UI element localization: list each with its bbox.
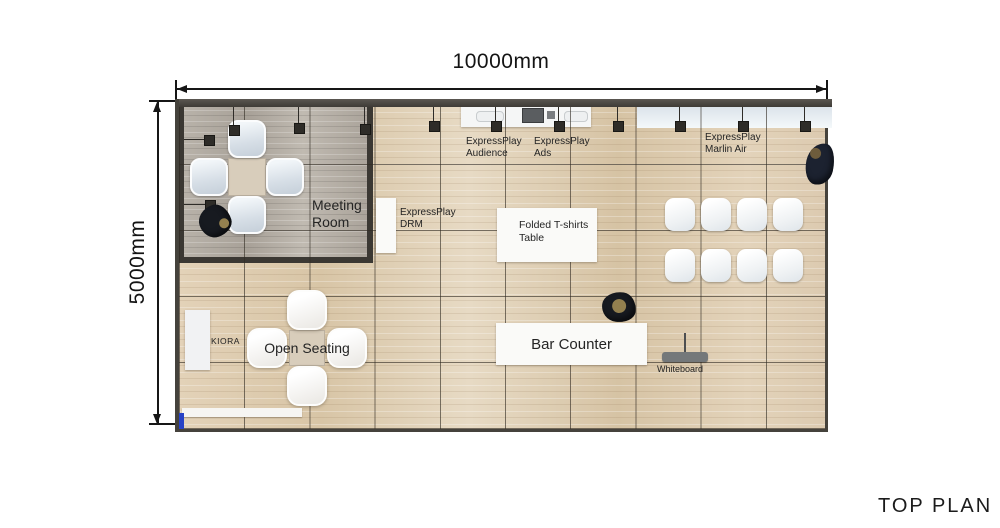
light-stem <box>679 107 680 122</box>
extension-tick <box>149 100 176 102</box>
open-seating-label: Open Seating <box>247 340 367 357</box>
audience-chair <box>773 249 803 282</box>
open-seating-sofa <box>287 366 327 406</box>
horizontal-dimension-line <box>176 88 826 90</box>
light-stem <box>184 204 205 205</box>
expressplay-ads-label: ExpressPlay Ads <box>534 136 590 160</box>
expressplay-marlin-air-label: ExpressPlay Marlin Air <box>705 132 761 156</box>
floor-plan: Bar Counter <box>175 99 828 432</box>
person <box>600 290 638 324</box>
vertical-dimension-line <box>157 102 159 423</box>
person-body <box>802 141 838 188</box>
kiora-kiosk <box>185 310 210 370</box>
audience-chair <box>665 198 695 231</box>
whiteboard-label: Whiteboard <box>657 364 703 375</box>
blue-floor-marker <box>179 413 184 429</box>
audience-chair <box>665 249 695 282</box>
page-title: TOP PLAN <box>878 495 992 518</box>
whiteboard <box>662 352 708 362</box>
meeting-room-label: Meeting Room <box>312 197 362 231</box>
light-stem <box>233 107 234 125</box>
expressplay-audience-label: ExpressPlay Audience <box>466 136 522 160</box>
light-stem <box>495 107 496 122</box>
audience-chair <box>737 198 767 231</box>
bar-counter-label: Bar Counter <box>531 336 612 353</box>
demo-box <box>547 111 555 119</box>
ceiling-light-icon <box>675 121 686 132</box>
drm-stand <box>376 198 396 253</box>
vertical-dimension-label: 5000mm <box>126 220 150 305</box>
meeting-chair <box>266 158 304 196</box>
extension-tick <box>175 80 177 100</box>
ceiling-light-icon <box>738 121 749 132</box>
extension-tick <box>826 80 828 100</box>
open-seating-sofa <box>287 290 327 330</box>
ceiling-light-icon <box>800 121 811 132</box>
dim-arrow-right-icon <box>816 85 826 93</box>
extension-tick <box>149 423 176 425</box>
light-stem <box>364 107 365 124</box>
audience-chair <box>701 249 731 282</box>
bench <box>182 408 302 417</box>
whiteboard-stand <box>684 333 686 352</box>
top-plan-page: 10000mm 5000mm TOP PLAN <box>0 0 1000 528</box>
light-stem <box>298 107 299 123</box>
dim-arrow-up-icon <box>153 102 161 112</box>
ceiling-light-icon <box>294 123 305 134</box>
top-wall <box>179 99 832 107</box>
ceiling-light-icon <box>204 135 215 146</box>
ceiling-light-icon <box>554 121 565 132</box>
expressplay-drm-label: ExpressPlay DRM <box>400 207 456 231</box>
demo-console <box>522 108 544 123</box>
meeting-chair <box>190 158 228 196</box>
bar-counter: Bar Counter <box>496 323 647 365</box>
audience-chair <box>701 198 731 231</box>
light-stem <box>433 107 434 122</box>
tshirt-table-label: Folded T-shirts Table <box>519 219 588 245</box>
ceiling-light-icon <box>429 121 440 132</box>
horizontal-dimension-label: 10000mm <box>175 50 827 74</box>
light-stem <box>558 107 559 122</box>
dim-arrow-left-icon <box>177 85 187 93</box>
audience-chair <box>737 249 767 282</box>
ceiling-light-icon <box>360 124 371 135</box>
ceiling-light-icon <box>491 121 502 132</box>
demo-device <box>564 111 588 122</box>
light-stem <box>617 107 618 122</box>
audience-chair <box>773 198 803 231</box>
light-stem <box>742 107 743 122</box>
meeting-table <box>228 158 266 196</box>
ceiling-light-icon <box>613 121 624 132</box>
ceiling-light-icon <box>229 125 240 136</box>
kiora-label: KIORA <box>211 336 240 346</box>
person <box>802 141 838 188</box>
light-stem <box>804 107 805 122</box>
light-stem <box>184 139 204 140</box>
